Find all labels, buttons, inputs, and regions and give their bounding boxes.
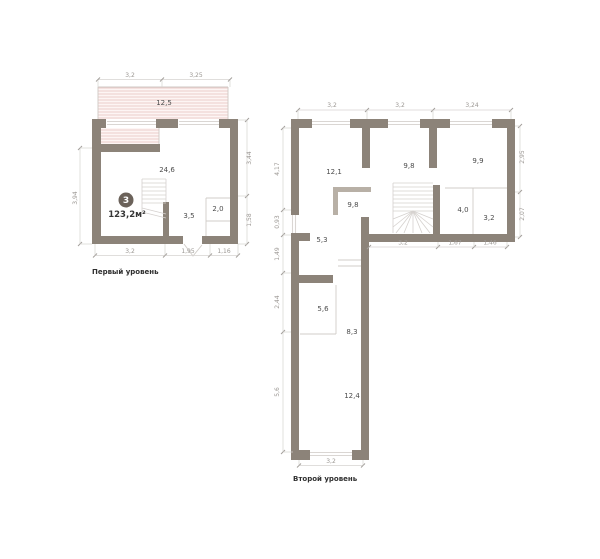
interior-lines-level2 <box>300 188 507 334</box>
dim-label: 1,49 <box>274 247 281 261</box>
wall <box>429 128 437 168</box>
room-label-bathroom: 4,0 <box>457 206 468 214</box>
dim-label: 4,17 <box>274 162 281 176</box>
floor-plan-card: 3,2 3,25 3,94 3,44 1,58 3,2 1,95 1,16 <box>0 0 600 559</box>
dim-label: 3,44 <box>246 151 253 165</box>
dim-label: 1,58 <box>246 213 253 227</box>
wall <box>420 119 450 128</box>
wall <box>230 119 238 244</box>
dim-label: 2,07 <box>519 207 526 221</box>
second-level-plan[interactable]: 3,2 3,2 3,24 4,17 0,93 1,49 2,44 5,6 2,9… <box>274 102 526 483</box>
half-wall <box>333 187 338 215</box>
terrace-area-lower <box>101 128 159 144</box>
room-label-corridor2: 8,3 <box>346 328 357 336</box>
windows-level2 <box>293 122 493 456</box>
level2-caption: Второй уровень <box>293 475 358 483</box>
wall <box>293 450 310 460</box>
dim-label: 3,2 <box>327 102 337 109</box>
wall <box>298 275 333 283</box>
room-label-living: 24,6 <box>159 166 175 174</box>
terrace-hatch <box>98 87 228 144</box>
room-label-wc: 3,2 <box>483 214 494 222</box>
dim-label: 2,44 <box>274 295 281 309</box>
dim-label: 1,46 <box>483 240 497 247</box>
wall <box>92 144 160 152</box>
first-level-plan[interactable]: 3,2 3,25 3,94 3,44 1,58 3,2 1,95 1,16 <box>72 72 253 276</box>
dim-label: 3,2 <box>125 248 135 255</box>
walls-level2 <box>291 119 515 460</box>
room-label-wc: 2,0 <box>212 205 223 213</box>
dim-label: 0,93 <box>274 215 281 229</box>
dim-label: 3,94 <box>72 191 79 205</box>
wall <box>362 128 370 168</box>
dim-label: 3,2 <box>326 458 336 465</box>
room-label-bedroom3: 9,9 <box>472 157 483 165</box>
apartment-badge: 3 123,2м² <box>108 193 146 221</box>
dim-label: 1,16 <box>217 248 231 255</box>
wall <box>507 119 515 242</box>
room-label-hall: 9,8 <box>347 201 358 209</box>
dim-label: 3,25 <box>189 72 203 79</box>
dim-label: 5,6 <box>274 387 281 397</box>
wall <box>433 185 440 234</box>
staircase-second-level <box>393 183 433 233</box>
room-label-hall: 3,5 <box>183 212 194 220</box>
dim-label: 1,95 <box>181 248 195 255</box>
dim-label: 3,2 <box>398 240 408 247</box>
room-label-room5: 12,4 <box>344 392 360 400</box>
total-area-label: 123,2м² <box>108 210 146 220</box>
dim-label: 2,95 <box>519 150 526 164</box>
wall <box>202 236 238 244</box>
dim-label: 3,2 <box>125 72 135 79</box>
level1-caption: Первый уровень <box>92 268 159 276</box>
dim-label: 1,67 <box>448 240 462 247</box>
wall <box>291 233 299 460</box>
wall <box>291 119 299 215</box>
wall <box>156 119 178 128</box>
room-label-bedroom1: 12,1 <box>326 168 342 176</box>
wall <box>291 233 310 241</box>
wall <box>361 217 369 460</box>
dim-label: 3,24 <box>465 102 479 109</box>
dim-label: 3,2 <box>395 102 405 109</box>
wall <box>92 236 183 244</box>
room-label-room4: 5,6 <box>317 305 329 313</box>
wall <box>350 119 388 128</box>
room-label-corridor1: 5,3 <box>316 236 327 244</box>
dimensions-level2: 3,2 3,2 3,24 4,17 0,93 1,49 2,44 5,6 2,9… <box>274 102 526 468</box>
half-wall <box>333 187 371 192</box>
room-label-terrace: 12,5 <box>156 99 172 107</box>
wall <box>92 119 101 244</box>
wall <box>352 450 369 460</box>
badge-number: 3 <box>123 196 129 206</box>
floor-plans-canvas: 3,2 3,25 3,94 3,44 1,58 3,2 1,95 1,16 <box>0 0 600 559</box>
room-label-bedroom2: 9,8 <box>403 162 414 170</box>
wall <box>163 202 169 236</box>
